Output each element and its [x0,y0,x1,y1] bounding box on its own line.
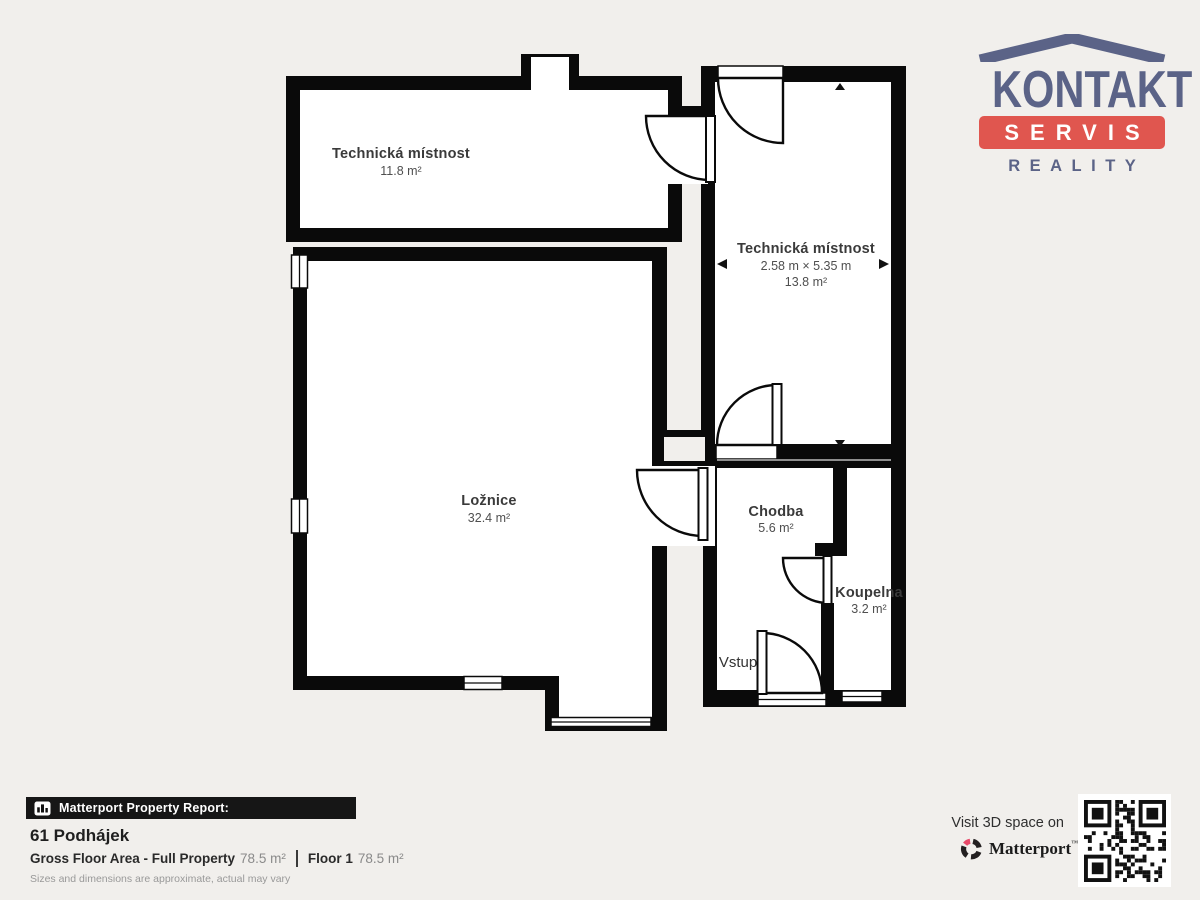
logo-subtitle: SERVIS [1004,120,1150,146]
matterport-brand[interactable]: Matterport™ [960,838,1078,860]
divider [296,850,298,867]
room-area: 32.4 m² [468,511,510,525]
room-name: Koupelna [835,585,903,601]
door-leaf [706,116,715,182]
wall-void [664,437,705,461]
floor-value: 78.5 m² [358,851,404,866]
disclaimer-text: Sizes and dimensions are approximate, ac… [30,873,290,885]
room-dims: 2.58 m × 5.35 m [761,259,852,273]
qr-code[interactable] [1078,794,1171,887]
property-address: 61 Podhájek [30,826,129,846]
logo-banner: SERVIS [979,116,1165,149]
matterport-wordmark: Matterport™ [989,839,1078,859]
floor-area-line: Gross Floor Area - Full Property 78.5 m²… [30,850,404,867]
building-icon [34,801,51,816]
roof-icon [972,34,1172,62]
entry-label: Vstup [719,654,757,671]
room-area: 11.8 m² [380,164,421,178]
report-bar-label: Matterport Property Report: [59,801,229,815]
wall-jut [815,543,847,556]
gross-area-value: 78.5 m² [240,851,286,866]
logo-tagline: REALITY [972,157,1182,176]
room-area: 3.2 m² [851,602,886,616]
door-leaf [824,556,832,604]
floor-label: Floor 1 [308,851,353,866]
report-title-bar: Matterport Property Report: [26,797,356,819]
room-name: Ložnice [461,493,516,509]
room-area: 13.8 m² [785,275,827,289]
qr-pattern [1084,800,1166,882]
room-area: 5.6 m² [758,521,793,535]
room-name: Technická místnost [737,241,875,257]
logo-title: KONTAKT [992,67,1152,113]
gross-area-label: Gross Floor Area - Full Property [30,851,235,866]
room-name: Technická místnost [332,146,470,162]
room-name: Chodba [748,504,804,520]
visit-3d-text: Visit 3D space on [940,815,1064,831]
agency-logo: KONTAKT SERVIS REALITY [972,34,1172,176]
door-leaf [773,384,782,445]
door-leaf [699,468,708,540]
door-leaf [758,631,767,694]
matterport-logo-icon [960,838,983,860]
door-opening [716,445,777,459]
